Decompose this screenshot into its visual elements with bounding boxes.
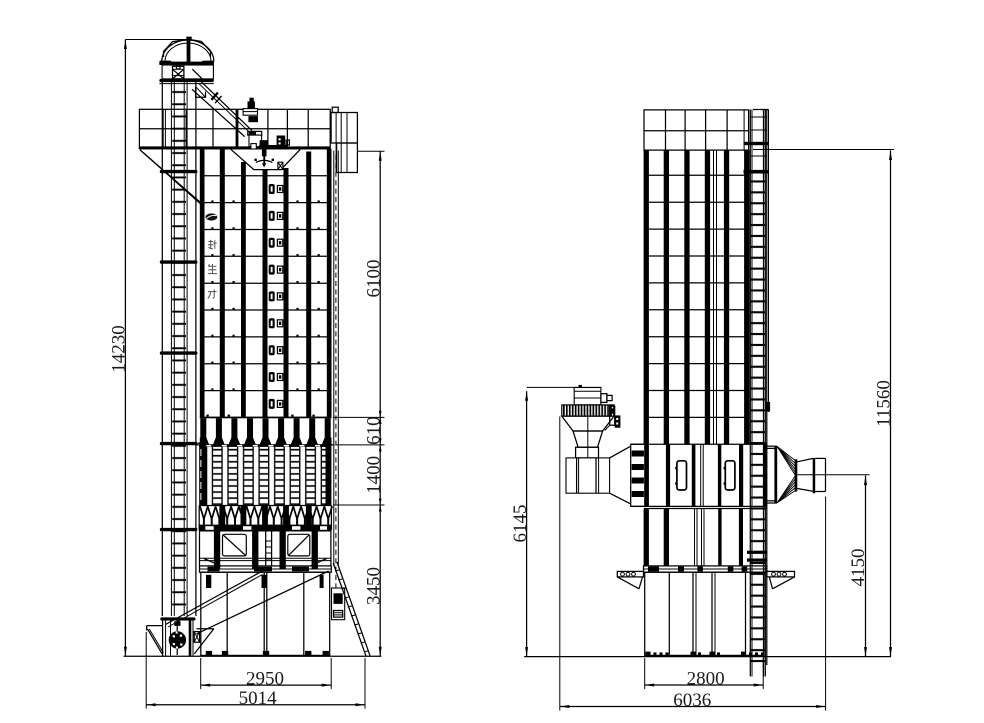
svg-text:6100: 6100 bbox=[363, 260, 384, 298]
svg-text:3450: 3450 bbox=[363, 567, 384, 605]
svg-text:14230: 14230 bbox=[109, 325, 130, 373]
svg-text:2950: 2950 bbox=[246, 668, 284, 689]
svg-text:5014: 5014 bbox=[239, 688, 278, 709]
svg-text:4150: 4150 bbox=[848, 549, 869, 587]
svg-text:1400: 1400 bbox=[363, 456, 384, 494]
svg-text:6145: 6145 bbox=[510, 505, 531, 543]
svg-text:11560: 11560 bbox=[873, 380, 894, 427]
svg-text:610: 610 bbox=[363, 416, 384, 445]
svg-text:2800: 2800 bbox=[687, 668, 725, 689]
svg-text:6036: 6036 bbox=[673, 690, 711, 711]
